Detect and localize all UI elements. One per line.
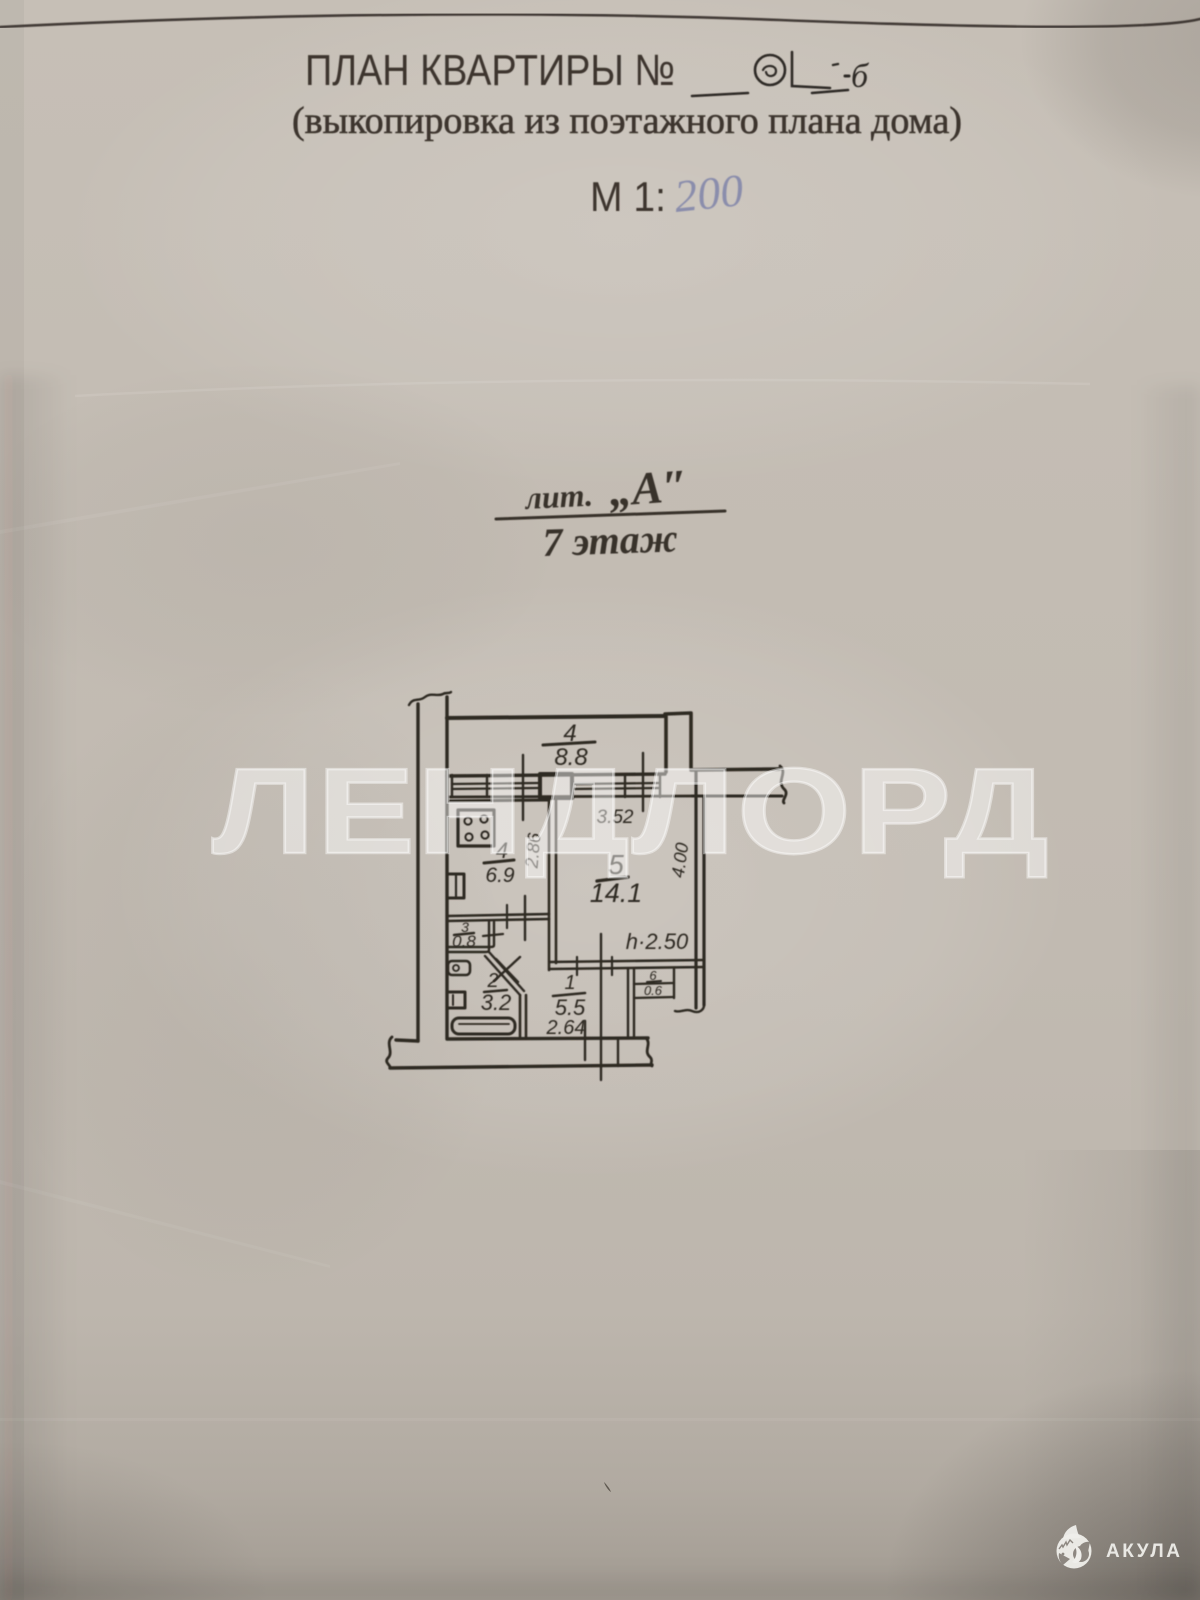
svg-text:б: б (851, 58, 870, 95)
svg-text:14.1: 14.1 (590, 878, 643, 908)
svg-text:3.2: 3.2 (481, 990, 512, 1015)
svg-text:„А″: „А″ (607, 460, 689, 516)
svg-text:1: 1 (564, 972, 575, 994)
svg-text:0.6: 0.6 (644, 983, 663, 998)
svg-text:0.8: 0.8 (452, 932, 476, 951)
svg-text:7 этаж: 7 этаж (542, 515, 679, 565)
svg-text:(выкопировка из поэтажного пла: (выкопировка из поэтажного плана дома) (292, 100, 962, 142)
svg-text:М 1:: М 1: (590, 173, 666, 220)
svg-text:ЛЕНДЛОРД: ЛЕНДЛОРД (212, 743, 1051, 880)
svg-text:2.64: 2.64 (546, 1017, 586, 1039)
svg-text:АКУЛА: АКУЛА (1106, 1541, 1182, 1562)
svg-text:200: 200 (672, 164, 746, 222)
svg-text:лит.: лит. (522, 477, 593, 517)
svg-text:6: 6 (649, 968, 657, 983)
svg-text:h·2.50: h·2.50 (626, 929, 689, 954)
svg-text:2: 2 (486, 970, 498, 992)
svg-text:ПЛАН КВАРТИРЫ №: ПЛАН КВАРТИРЫ № (305, 46, 675, 95)
